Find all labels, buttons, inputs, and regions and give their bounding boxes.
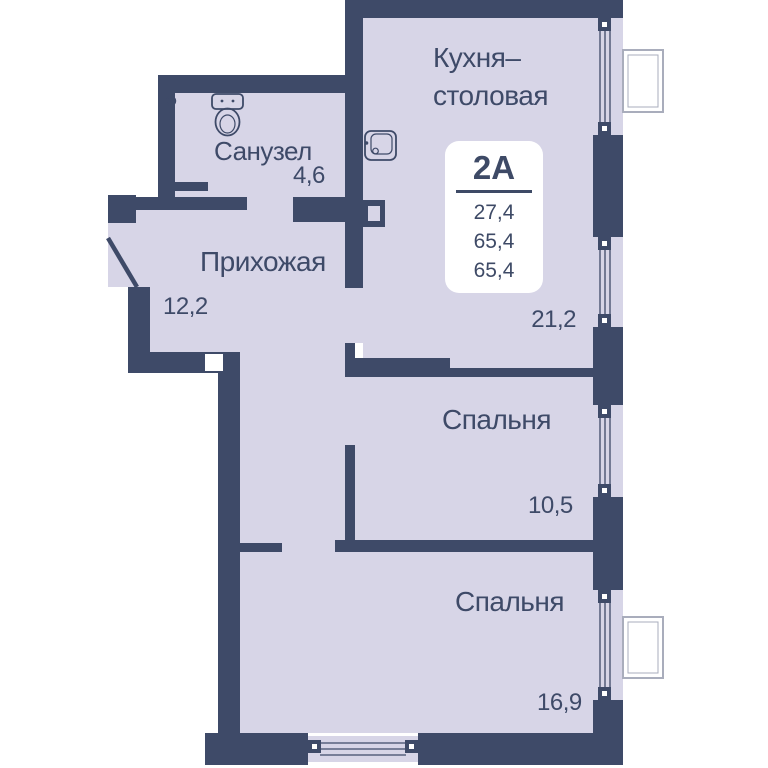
window-bottom xyxy=(308,736,418,762)
bedroom1-area: 10,5 xyxy=(528,492,573,520)
kitchen-name-line2: столовая xyxy=(433,80,548,112)
unit-area-living: 27,4 xyxy=(445,198,543,227)
corridor-floor xyxy=(240,373,363,552)
bedroom2-area: 16,9 xyxy=(537,689,582,717)
hallway-name: Прихожая xyxy=(200,246,326,278)
kitchen-name-line1: Кухня– xyxy=(433,42,521,74)
floor-plan: Кухня– столовая 21,2 Санузел 4,6 Прихожа… xyxy=(0,0,768,768)
bedroom2-name: Спальня xyxy=(455,586,564,618)
hallway-floor xyxy=(136,210,345,373)
unit-info-card: 2А 27,4 65,4 65,4 xyxy=(445,141,543,293)
balcony-bottom xyxy=(623,617,663,678)
unit-number: 2А xyxy=(445,151,543,184)
bathroom-area: 4,6 xyxy=(293,162,325,190)
wall-notch xyxy=(205,354,223,371)
duct-opening xyxy=(368,206,380,221)
bedroom2-doorway-floor xyxy=(282,540,335,552)
kitchen-area: 21,2 xyxy=(520,306,576,334)
unit-area-total2: 65,4 xyxy=(445,256,543,285)
balcony-top xyxy=(623,50,663,112)
hallway-area: 12,2 xyxy=(163,293,208,321)
card-divider xyxy=(456,190,532,193)
floor-plan-drawing xyxy=(0,0,768,768)
unit-area-total: 65,4 xyxy=(445,227,543,256)
kitchen-doorway-floor xyxy=(345,288,363,343)
bedroom1-doorway-floor xyxy=(345,392,355,445)
bedroom1-name: Спальня xyxy=(442,404,551,436)
